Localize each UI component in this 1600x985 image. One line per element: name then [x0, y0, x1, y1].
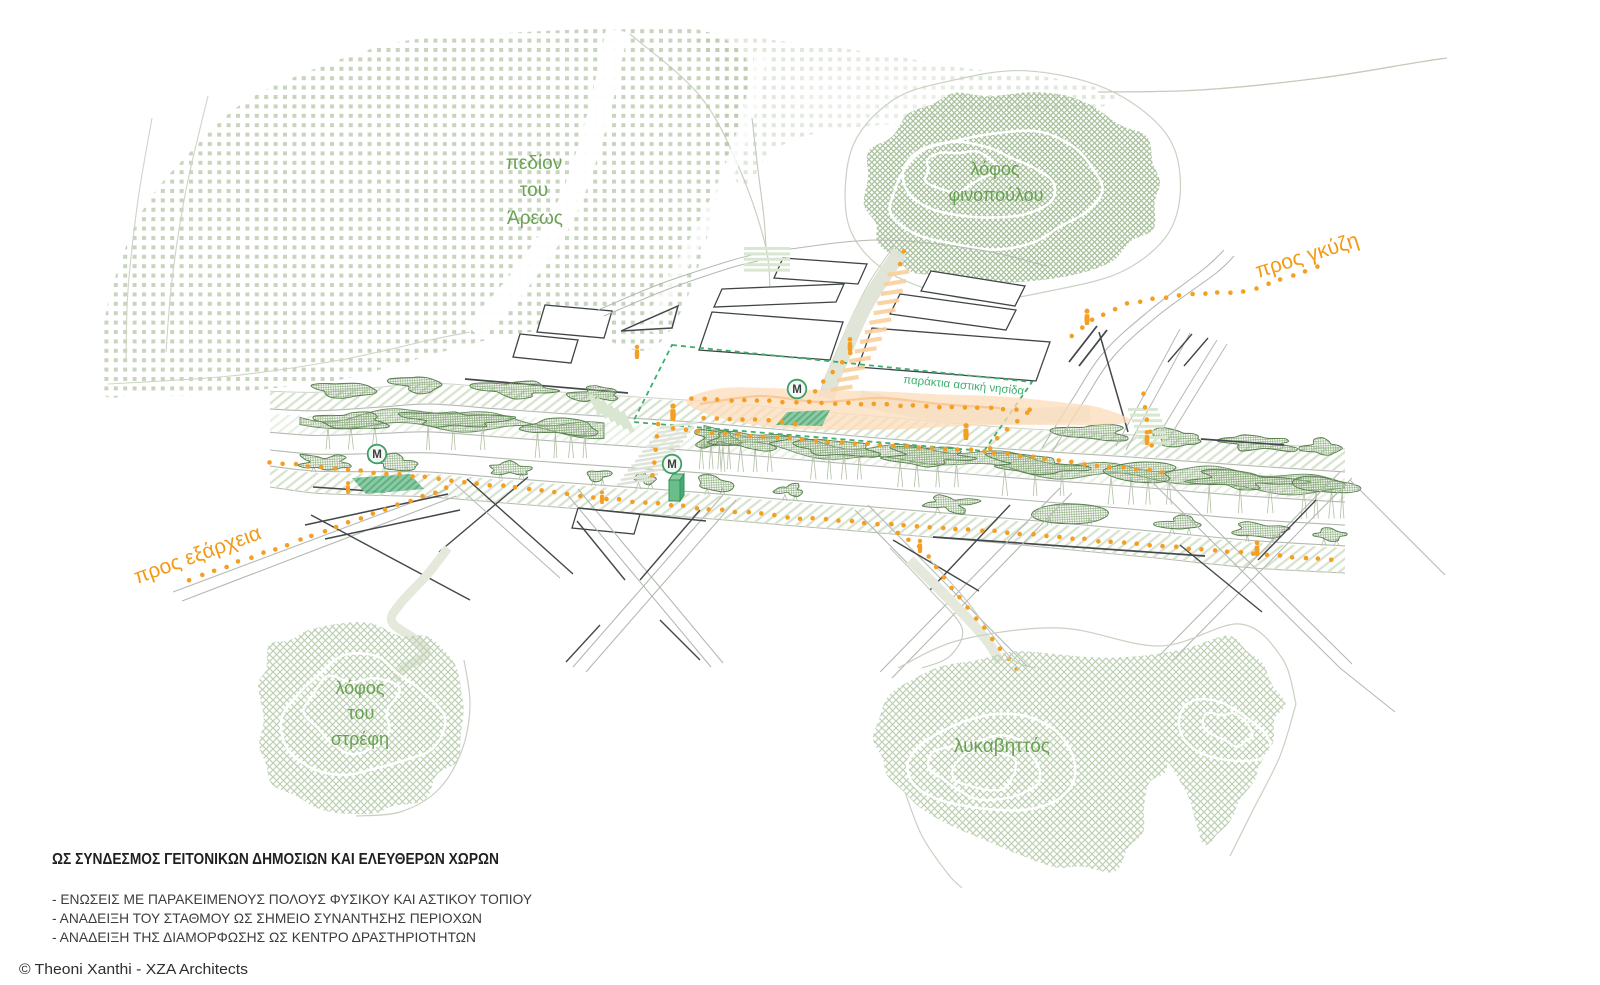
svg-text:φινοπούλου: φινοπούλου — [948, 185, 1043, 205]
svg-text:M: M — [792, 384, 802, 396]
svg-text:του: του — [520, 180, 548, 201]
svg-text:M: M — [667, 459, 677, 471]
svg-text:© Theoni Xanthi - XZA Architec: © Theoni Xanthi - XZA Architects — [19, 962, 248, 978]
svg-text:- ΕΝΩΣΕΙΣ ΜΕ ΠΑΡΑΚΕΙΜΕΝΟΥΣ ΠΟΛ: - ΕΝΩΣΕΙΣ ΜΕ ΠΑΡΑΚΕΙΜΕΝΟΥΣ ΠΟΛΟΥΣ ΦΥΣΙΚΟ… — [52, 891, 533, 907]
svg-text:- ΑΝΑΔΕΙΞΗ ΤΗΣ ΔΙΑΜΟΡΦΩΣΗΣ ΩΣ: - ΑΝΑΔΕΙΞΗ ΤΗΣ ΔΙΑΜΟΡΦΩΣΗΣ ΩΣ ΚΕΝΤΡΟ ΔΡΑ… — [52, 929, 476, 945]
svg-text:ΩΣ ΣΥΝΔΕΣΜΟΣ ΓΕΙΤΟΝΙΚΩΝ ΔΗΜΟΣΙ: ΩΣ ΣΥΝΔΕΣΜΟΣ ΓΕΙΤΟΝΙΚΩΝ ΔΗΜΟΣΙΩΝ ΚΑΙ ΕΛΕ… — [52, 851, 499, 868]
svg-text:του: του — [348, 703, 375, 723]
svg-text:Άρεως: Άρεως — [507, 208, 563, 229]
svg-text:λόφος: λόφος — [335, 678, 384, 698]
svg-text:λυκαβηττός: λυκαβηττός — [954, 736, 1050, 757]
svg-text:πεδίον: πεδίον — [506, 153, 562, 174]
svg-text:M: M — [372, 449, 382, 461]
svg-text:λόφος: λόφος — [970, 159, 1019, 179]
svg-text:στρέφη: στρέφη — [331, 729, 389, 749]
svg-text:- ΑΝΑΔΕΙΞΗ ΤΟΥ ΣΤΑΘΜΟΥ ΩΣ ΣΗΜΕ: - ΑΝΑΔΕΙΞΗ ΤΟΥ ΣΤΑΘΜΟΥ ΩΣ ΣΗΜΕΙΟ ΣΥΝΑΝΤΗ… — [52, 910, 482, 926]
